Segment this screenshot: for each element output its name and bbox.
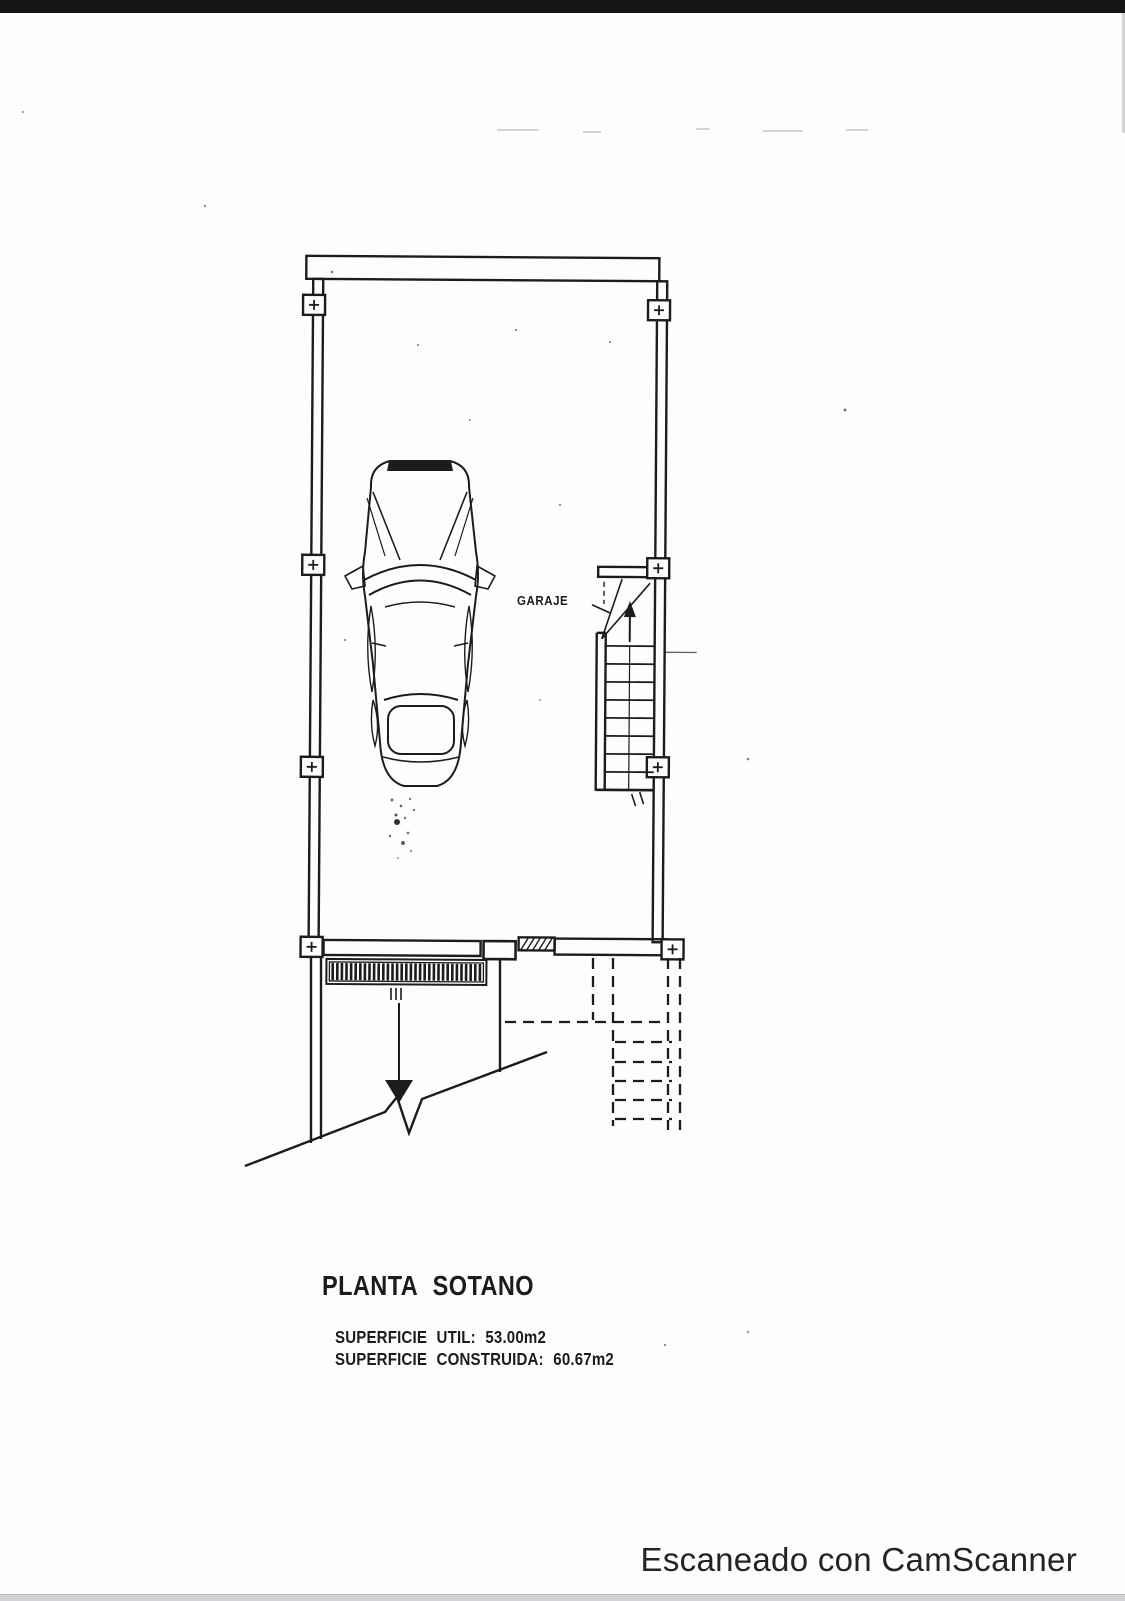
column-marker bbox=[647, 558, 669, 578]
column-marker bbox=[302, 555, 324, 575]
break-ticks bbox=[632, 792, 644, 806]
staircase bbox=[591, 579, 656, 806]
camscanner-watermark: Escaneado con CamScanner bbox=[641, 1541, 1077, 1579]
plan-title: PLANTA SOTANO bbox=[322, 1270, 534, 1302]
windshield bbox=[364, 565, 476, 580]
ramp-edge-line bbox=[245, 1052, 547, 1166]
rear-window bbox=[384, 694, 458, 700]
trunk bbox=[388, 706, 454, 754]
superficie-util-line: SUPERFICIE UTIL: 53.00m2 bbox=[335, 1327, 546, 1348]
exterior-walls bbox=[298, 256, 699, 987]
bottom-wall bbox=[323, 936, 666, 960]
car-front-band bbox=[387, 461, 453, 471]
superficie-construida-line: SUPERFICIE CONSTRUIDA: 60.67m2 bbox=[335, 1349, 614, 1370]
column-marker bbox=[301, 757, 323, 777]
stair-direction-arrow bbox=[624, 601, 636, 642]
exterior-stairs-dashed bbox=[505, 958, 680, 1130]
winder-steps bbox=[602, 579, 650, 639]
car-top-view bbox=[345, 461, 495, 786]
scan-speckles bbox=[22, 111, 847, 1346]
column-marker bbox=[303, 295, 325, 315]
column-marker bbox=[661, 939, 683, 959]
column-marker bbox=[648, 300, 670, 320]
ramp-arrow bbox=[385, 988, 413, 1103]
left-wall-extension bbox=[311, 956, 321, 1143]
left-mirror bbox=[345, 566, 365, 589]
garage-door bbox=[326, 959, 486, 985]
column-marker bbox=[301, 937, 323, 957]
column-marker bbox=[647, 757, 669, 777]
scan-smudges bbox=[497, 129, 868, 132]
room-label-garaje: GARAJE bbox=[517, 594, 568, 608]
